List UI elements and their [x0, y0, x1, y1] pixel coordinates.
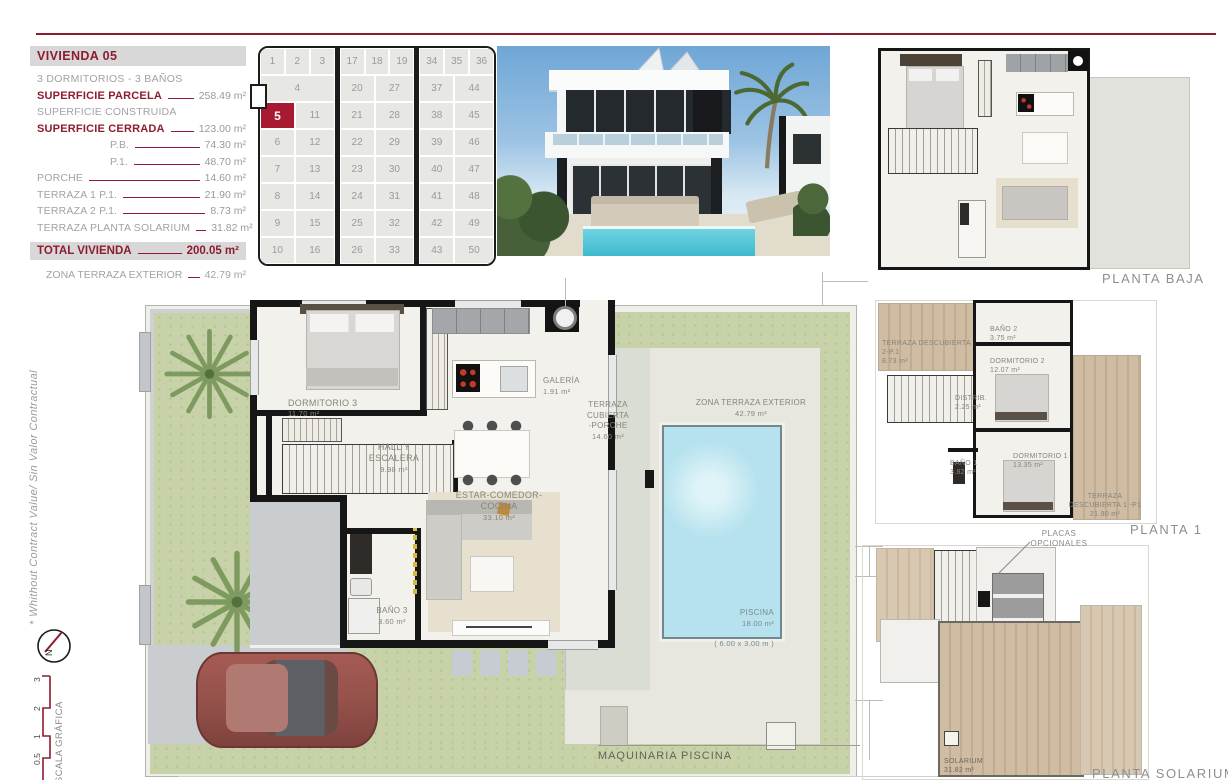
plot-row: 2330: [340, 156, 415, 183]
plot-cell-34: 34: [419, 48, 444, 75]
placas-leader-line: [988, 538, 1034, 578]
plot-block-1: 1718192027212822292330243125322633: [340, 48, 415, 264]
wall-stair-left: [266, 416, 272, 498]
top-border-line: [36, 33, 1216, 35]
bano2-name: BAÑO 2: [990, 326, 1017, 333]
plot-cell-29: 29: [375, 129, 415, 156]
plot-cell-30: 30: [375, 156, 415, 183]
plot-row: 4148: [419, 183, 494, 210]
dorm1-area: 13.35 m²: [1013, 461, 1083, 470]
plot-cell-13: 13: [295, 156, 335, 183]
plot-cell-37: 37: [419, 75, 454, 102]
plot-cell-39: 39: [419, 129, 454, 156]
plot-row: 3744: [419, 75, 494, 102]
plot-row: 4350: [419, 237, 494, 264]
spec-row-label: SUPERFICIE PARCELA: [37, 90, 162, 102]
plants-left: [497, 158, 569, 256]
pb-closet: [978, 60, 992, 117]
plot-cell-7: 7: [260, 156, 295, 183]
disclaimer-text: * Whithout Contract Value/ Sin Valor Con…: [28, 360, 48, 625]
north-letter: N: [44, 650, 54, 657]
plot-cell-41: 41: [419, 183, 454, 210]
p1-label-terraza2: TERRAZA DESCUBIERTA 2-P.1 8.73 m²: [882, 330, 974, 375]
sol-utility-box: [978, 591, 990, 607]
wall-inset-left: [340, 500, 347, 648]
maquinaria-rule: [598, 745, 860, 746]
spec-footer-row: ZONA TERRAZA EXTERIOR 42.79 m²: [46, 269, 246, 281]
plot-cell-6: 6: [260, 129, 295, 156]
spec-row-value: 14.60 m²: [205, 172, 246, 184]
planta-solarium-title: PLANTA SOLARIUM: [1092, 766, 1228, 780]
plot-cell-49: 49: [454, 210, 494, 237]
p1-bed2-foot: [995, 412, 1047, 420]
leader-line: [171, 131, 194, 132]
plot-block-2: 3435363744384539464047414842494350: [419, 48, 494, 264]
plot-row: 3845: [419, 102, 494, 129]
plot-cell-10: 10: [260, 237, 295, 264]
plot-row: 2532: [340, 210, 415, 237]
sol-deck-hatch: [944, 731, 959, 746]
entry-court-overlay: [250, 502, 340, 645]
washing-machine-icon: [553, 306, 577, 330]
p1-label-distrib: DISTRIB. 2.25 m²: [955, 385, 995, 421]
plot-row: 4: [260, 75, 335, 102]
spec-row-value: 258.49 m²: [199, 90, 246, 102]
wall-left: [250, 300, 257, 502]
plot-row: 4047: [419, 156, 494, 183]
plot-cell-9: 9: [260, 210, 295, 237]
spec-row-2: SUPERFICIE CERRADA123.00 m²: [37, 123, 246, 135]
bano1-name: BAÑO 1: [950, 460, 977, 467]
pb-cooktop: [1018, 94, 1034, 112]
terraza2-name: TERRAZA DESCUBIERTA 2-P.1: [882, 340, 971, 356]
terraza1-name: TERRAZA DESCUBIERTA 1 -P1: [1069, 493, 1142, 509]
room-label-estar: ESTAR-COMEDOR-COCINA 33.10 m²: [450, 478, 548, 535]
sol-stairs: [934, 550, 980, 624]
leader-line: [134, 164, 199, 165]
hall-name: HALL Y ESCALERA: [369, 442, 419, 464]
spec-total-row: TOTAL VIVIENDA 200.05 m²: [30, 242, 246, 260]
plot-row: 2431: [340, 183, 415, 210]
spec-row-6: TERRAZA 1 P.1.21.90 m²: [37, 189, 246, 201]
plot-cell-20: 20: [340, 75, 375, 102]
section-marker-dashes: [413, 528, 417, 594]
solarium-area: 31.82 m²: [944, 766, 1004, 775]
scale-tick-1: 1: [32, 734, 42, 739]
bano3-name: BAÑO 3: [376, 606, 407, 615]
plot-cell-8: 8: [260, 183, 295, 210]
plot-row: 2128: [340, 102, 415, 129]
scale-caption: ESCALA GRÁFICA: [54, 700, 68, 780]
outdoor-sofa: [591, 196, 699, 230]
plot-cell-4: 4: [260, 75, 335, 102]
car-roof: [226, 664, 288, 732]
plot-row: 915: [260, 210, 335, 237]
plot-cell-3: 3: [310, 48, 335, 75]
scale-tick-2: 2: [32, 706, 42, 711]
plot-row: 343536: [419, 48, 494, 75]
pb-dining: [1022, 132, 1068, 164]
spec-row-value: 21.90 m²: [205, 189, 246, 201]
plants-right: [793, 174, 830, 236]
pb-bed-pillows: [909, 69, 959, 81]
unit-title: VIVIENDA 05: [30, 46, 246, 66]
gate-left-lower: [139, 585, 151, 645]
dimension-line-2: [822, 281, 868, 282]
plot-cell-31: 31: [375, 183, 415, 210]
p1-label-bano2: BAÑO 2 3.75 m²: [990, 316, 1034, 352]
plot-cell-19: 19: [389, 48, 414, 75]
p1-label-bano1: BAÑO 1 3.82 m²: [950, 450, 990, 486]
plot-row: 511: [260, 102, 335, 129]
sol-terrace-right: [1080, 605, 1142, 775]
plot-cell-2: 2: [285, 48, 310, 75]
villa-upper-dark-fascia: [693, 90, 722, 134]
plot-selector-grid: 1234511612713814915101617181920272128222…: [258, 46, 496, 266]
dorm1-name: DORMITORIO 1: [1013, 453, 1068, 460]
room-label-bano3: BAÑO 3 3.60 m²: [368, 596, 416, 637]
scale-tick-3: 3: [32, 677, 42, 682]
plot-cell-38: 38: [419, 102, 454, 129]
spec-row-5: PORCHE14.60 m²: [37, 172, 246, 184]
pb-cabinets: [1006, 54, 1068, 72]
spec-row-value: 8.73 m²: [210, 205, 246, 217]
spec-row-3: P.B.74.30 m²: [110, 139, 246, 151]
spec-row-label: SUPERFICIE CONSTRUIDA: [37, 106, 177, 118]
room-label-dormitorio3: DORMITORIO 3 11.70 m²: [288, 386, 358, 431]
spec-row-7: TERRAZA 2 P.1.8.73 m²: [37, 205, 246, 217]
villa-balcony-glass-rail: [553, 134, 723, 145]
total-value: 200.05 m²: [187, 245, 239, 257]
total-label: TOTAL VIVIENDA: [37, 245, 132, 257]
pool-label: PISCINA 18.00 m² ( 6.00 x 3.00 m ): [698, 598, 774, 659]
leader-line: [135, 147, 199, 148]
spec-row-label: P.1.: [110, 156, 128, 168]
spec-row-label: PORCHE: [37, 172, 83, 184]
porche-name: TERRAZA CUBIERTA -PORCHE: [587, 400, 629, 430]
plot-cell-44: 44: [454, 75, 494, 102]
sliding-door-right: [608, 470, 617, 590]
spec-row-label: TERRAZA PLANTA SOLARIUM: [37, 222, 190, 234]
plot-row: 713: [260, 156, 335, 183]
plot-cell-27: 27: [375, 75, 415, 102]
estar-name: ESTAR-COMEDOR-COCINA: [456, 490, 543, 512]
p1-label-dorm2: DORMITORIO 2 12.07 m²: [990, 348, 1060, 384]
plot-cell-35: 35: [444, 48, 469, 75]
bed-throw: [306, 368, 398, 386]
bath3-wc: [350, 578, 372, 596]
plot-cell-14: 14: [295, 183, 335, 210]
dormitorio3-name: DORMITORIO 3: [288, 398, 357, 408]
plot-cell-45: 45: [454, 102, 494, 129]
plot-cell-50: 50: [454, 237, 494, 264]
window-left: [250, 340, 259, 395]
scale-tick-05: 0.5: [32, 753, 42, 765]
plot-row: 2027: [340, 75, 415, 102]
zona-area: 42.79 m²: [690, 409, 812, 419]
plot-cell-21: 21: [340, 102, 375, 129]
dorm2-area: 12.07 m²: [990, 366, 1060, 375]
plot-row: 4249: [419, 210, 494, 237]
bed-pillows: [310, 314, 394, 332]
wall-inset-top: [250, 495, 347, 502]
plot-row: 2633: [340, 237, 415, 264]
plot-block-0: 12345116127138149151016: [260, 48, 335, 264]
pb-stairs: [888, 128, 978, 174]
p1-label-dorm1: DORMITORIO 1 13.35 m²: [1013, 443, 1083, 479]
plot-row: 1016: [260, 237, 335, 264]
dimension-line-1: [565, 278, 566, 306]
spec-row-8: TERRAZA PLANTA SOLARIUM31.82 m²: [37, 222, 246, 234]
tv-line: [466, 626, 532, 628]
spec-rows: SUPERFICIE PARCELA258.49 m²SUPERFICIE CO…: [30, 90, 246, 234]
spec-row-label: TERRAZA 2 P.1.: [37, 205, 117, 217]
estar-area: 33.10 m²: [450, 513, 548, 523]
planta-baja-title: PLANTA BAJA: [1102, 271, 1205, 286]
zone-label-terraza-exterior: ZONA TERRAZA EXTERIOR 42.79 m²: [690, 388, 812, 429]
plot-cell-26: 26: [340, 237, 375, 264]
plot-row: 2229: [340, 129, 415, 156]
plot-cell-46: 46: [454, 129, 494, 156]
plot-cell-33: 33: [375, 237, 415, 264]
plot-cell-17: 17: [340, 48, 365, 75]
leader-line: [89, 180, 199, 181]
p1-bed1-foot: [1003, 502, 1053, 510]
spec-row-1: SUPERFICIE CONSTRUIDA: [37, 106, 246, 118]
pb-washer-drum: [1073, 56, 1083, 66]
leader-line: [168, 98, 194, 99]
pb-wardrobe: [900, 54, 962, 66]
pb-sofa: [1002, 186, 1068, 220]
planta1-title: PLANTA 1: [1130, 522, 1203, 537]
plot-cell-18: 18: [365, 48, 390, 75]
planta-baja-terrace: [1088, 77, 1190, 269]
plot-cell-23: 23: [340, 156, 375, 183]
plot-cell-40: 40: [419, 156, 454, 183]
footer-value: 42.79 m²: [205, 269, 246, 281]
total-leader-line: [138, 253, 182, 254]
zona-name: ZONA TERRAZA EXTERIOR: [696, 398, 806, 407]
spec-row-value: 123.00 m²: [199, 123, 246, 135]
sink-icon: [500, 366, 528, 392]
swimming-pool-photo: [583, 226, 755, 256]
pool-machine-pad: [600, 706, 628, 746]
garden-strip-right: [820, 312, 850, 774]
spec-row-value: 48.70 m²: [205, 156, 246, 168]
villa-photo: [497, 46, 830, 256]
kitchen-cabinets: [432, 308, 530, 334]
pb-bath-vanity: [960, 203, 969, 225]
dormitorio3-area: 11.70 m²: [288, 409, 358, 419]
plot-cell-47: 47: [454, 156, 494, 183]
footer-leader-line: [188, 277, 199, 278]
terraza1-area: 21.90 m²: [1068, 510, 1142, 519]
dining-table: [454, 430, 530, 478]
plot-row: 123: [260, 48, 335, 75]
plot-cell-22: 22: [340, 129, 375, 156]
spec-row-0: SUPERFICIE PARCELA258.49 m²: [37, 90, 246, 102]
villa-black-column-right: [711, 158, 722, 220]
plot-row: 814: [260, 183, 335, 210]
cooktop-icon: [456, 364, 480, 392]
distrib-area: 2.25 m²: [955, 403, 995, 412]
dorm2-name: DORMITORIO 2: [990, 358, 1045, 365]
plot-grid-notch: [250, 84, 267, 109]
plot-cell-16: 16: [295, 237, 335, 264]
plot-cell-25: 25: [340, 210, 375, 237]
door-bottom-porch: [548, 640, 598, 650]
spec-row-label: TERRAZA 1 P.1.: [37, 189, 117, 201]
plot-row: 3946: [419, 129, 494, 156]
north-compass: N: [32, 624, 76, 668]
plot-cell-48: 48: [454, 183, 494, 210]
spec-panel: VIVIENDA 05 3 DORMITORIOS - 3 BAÑOS SUPE…: [30, 46, 246, 281]
villa-roof-slab: [549, 70, 729, 90]
porch-column: [645, 470, 654, 488]
plot-cell-1: 1: [260, 48, 285, 75]
piscina-dims: ( 6.00 x 3.00 m ): [698, 639, 774, 649]
zone-label-porche: TERRAZA CUBIERTA -PORCHE 14.60 m²: [568, 390, 648, 452]
spec-row-value: 31.82 m²: [211, 222, 252, 234]
bano3-area: 3.60 m²: [368, 617, 416, 627]
plot-cell-43: 43: [419, 237, 454, 264]
palm-top-view-1: [162, 318, 257, 430]
maquinaria-label: MAQUINARIA PISCINA: [560, 749, 770, 763]
unit-subtitle: 3 DORMITORIOS - 3 BAÑOS: [37, 73, 246, 85]
plot-cell-24: 24: [340, 183, 375, 210]
bath3-vanity: [350, 534, 372, 574]
plot-cell-42: 42: [419, 210, 454, 237]
piscina-area: 18.00 m²: [698, 619, 774, 629]
plot-cell-36: 36: [469, 48, 494, 75]
spec-row-4: P.1.48.70 m²: [110, 156, 246, 168]
footer-label: ZONA TERRAZA EXTERIOR: [46, 269, 182, 281]
room-label-hall: HALL Y ESCALERA 9.98 m²: [358, 430, 430, 487]
distrib-name: DISTRIB.: [955, 395, 987, 402]
coffee-table: [470, 556, 514, 592]
plot-cell-15: 15: [295, 210, 335, 237]
spec-row-value: 74.30 m²: [205, 139, 246, 151]
leader-line: [196, 230, 206, 231]
neighbor-house-window: [793, 134, 821, 164]
galeria-name: GALERÍA: [543, 376, 580, 385]
p1-wall-mid: [975, 428, 1071, 432]
sol-annex: [880, 619, 940, 683]
hall-area: 9.98 m²: [358, 465, 430, 475]
leader-line: [123, 213, 205, 214]
terraza2-area: 8.73 m²: [882, 357, 974, 366]
tv-bench: [452, 620, 550, 636]
plan-sheet: VIVIENDA 05 3 DORMITORIOS - 3 BAÑOS SUPE…: [0, 0, 1228, 780]
spec-row-label: P.B.: [110, 139, 129, 151]
plot-row: 612: [260, 129, 335, 156]
porche-area: 14.60 m²: [568, 432, 648, 442]
plot-cell-12: 12: [295, 129, 335, 156]
plot-row: 171819: [340, 48, 415, 75]
bano1-area: 3.82 m²: [950, 468, 990, 477]
bano2-area: 3.75 m²: [990, 334, 1034, 343]
solarium-room-label: SOLARIUM 31.82 m²: [944, 748, 1004, 780]
spec-row-label: SUPERFICIE CERRADA: [37, 123, 165, 135]
solarium-name: SOLARIUM: [944, 758, 983, 765]
piscina-name: PISCINA: [740, 608, 774, 617]
dimension-line-3: [822, 272, 823, 306]
leader-line: [123, 197, 199, 198]
gate-left-upper: [139, 332, 151, 392]
plot-cell-32: 32: [375, 210, 415, 237]
plot-cell-28: 28: [375, 102, 415, 129]
plot-cell-11: 11: [295, 102, 335, 129]
